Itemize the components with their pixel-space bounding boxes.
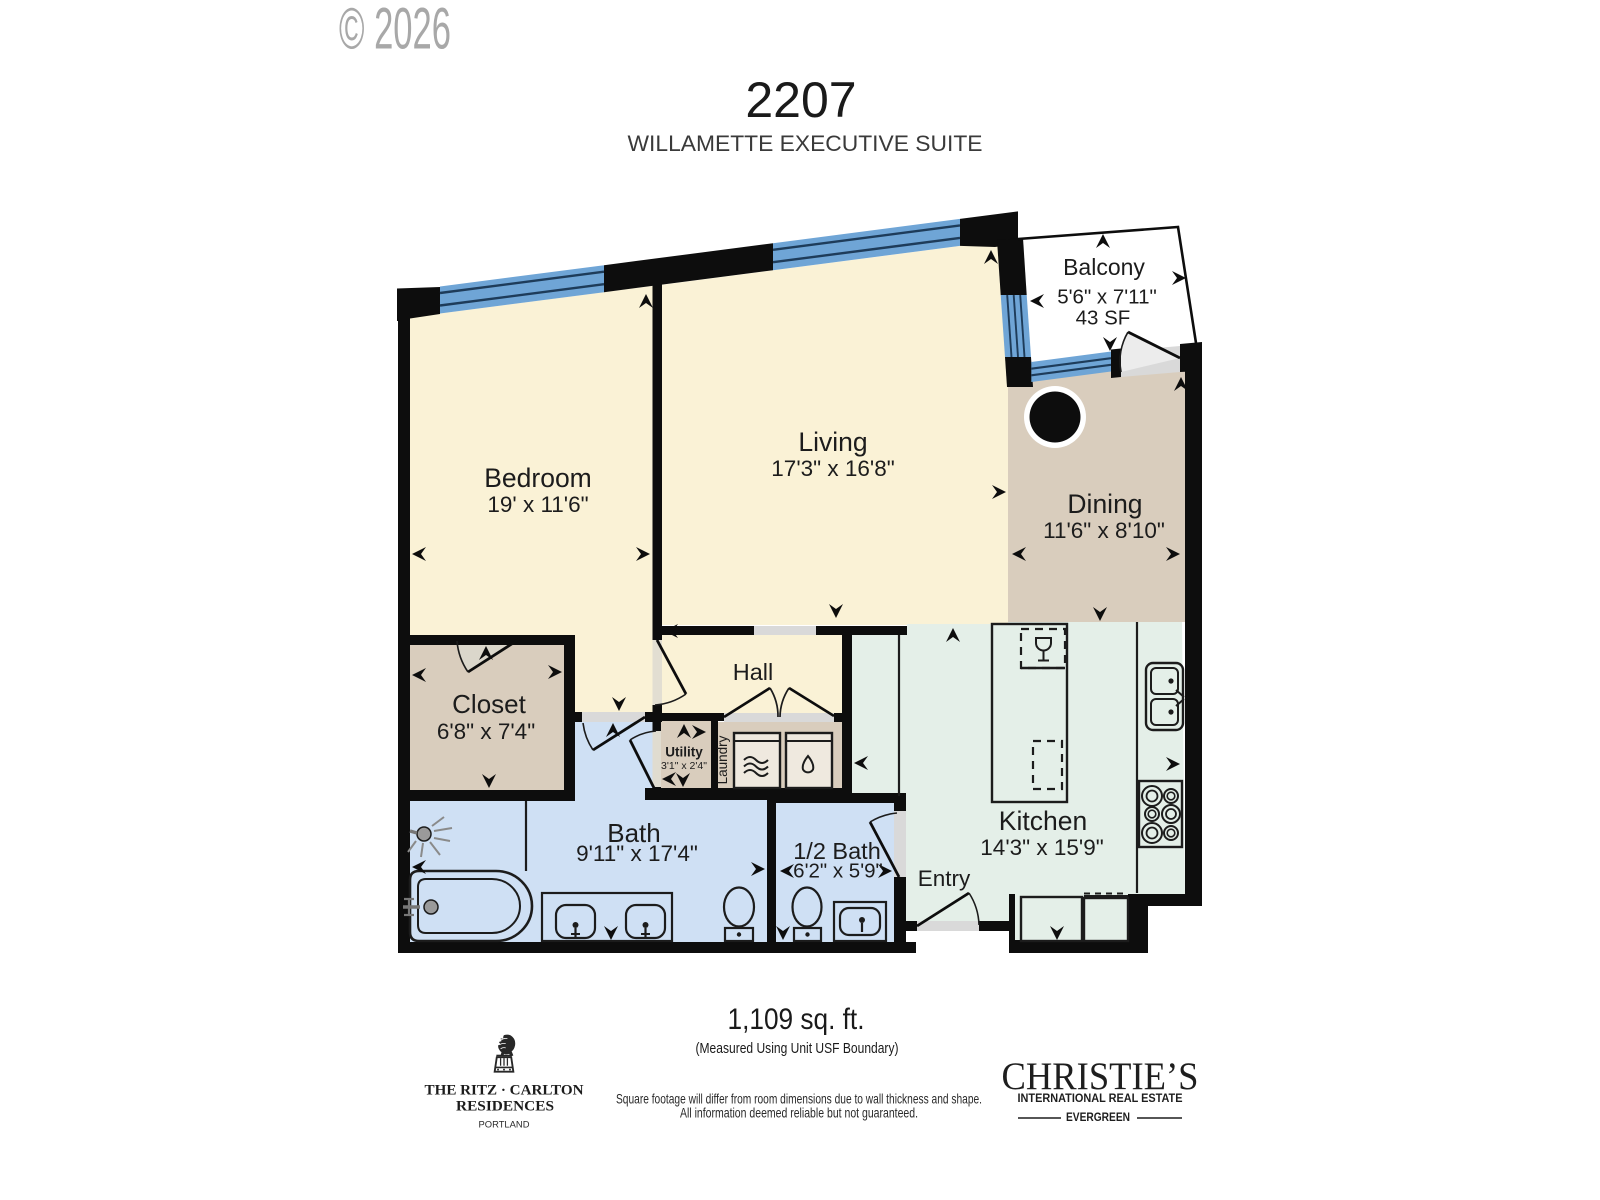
svg-text:INTERNATIONAL REAL ESTATE: INTERNATIONAL REAL ESTATE (1018, 1091, 1183, 1105)
svg-text:2207: 2207 (745, 72, 856, 128)
svg-text:Utility: Utility (665, 745, 703, 760)
svg-text:© 2026: © 2026 (339, 0, 451, 61)
svg-text:11'6" x 8'10": 11'6" x 8'10" (1043, 518, 1165, 543)
svg-text:EVERGREEN: EVERGREEN (1066, 1112, 1130, 1124)
svg-text:(Measured Using Unit USF Bound: (Measured Using Unit USF Boundary) (696, 1040, 899, 1057)
svg-text:Hall: Hall (733, 659, 773, 685)
svg-text:43 SF: 43 SF (1076, 306, 1131, 329)
svg-text:All information deemed reliabl: All information deemed reliable but not … (680, 1105, 918, 1121)
svg-text:Bedroom: Bedroom (484, 463, 592, 493)
svg-text:3'1" x 2'4": 3'1" x 2'4" (661, 760, 707, 772)
svg-text:Living: Living (798, 427, 867, 457)
svg-text:19' x 11'6": 19' x 11'6" (487, 492, 588, 517)
svg-text:Closet: Closet (452, 689, 526, 719)
svg-text:Kitchen: Kitchen (999, 806, 1087, 836)
svg-text:Laundry: Laundry (715, 735, 730, 784)
svg-text:Balcony: Balcony (1063, 254, 1145, 280)
svg-text:17'3" x 16'8": 17'3" x 16'8" (771, 456, 894, 481)
svg-text:RESIDENCES: RESIDENCES (456, 1098, 554, 1114)
svg-text:Entry: Entry (918, 866, 971, 891)
svg-text:5'6" x 7'11": 5'6" x 7'11" (1057, 285, 1157, 308)
svg-text:PORTLAND: PORTLAND (479, 1120, 530, 1131)
svg-text:Dining: Dining (1067, 489, 1142, 519)
svg-text:WILLAMETTE EXECUTIVE SUITE: WILLAMETTE EXECUTIVE SUITE (628, 131, 983, 156)
svg-text:THE RITZ · CARLTON: THE RITZ · CARLTON (425, 1082, 584, 1098)
svg-text:9'11" x 17'4": 9'11" x 17'4" (576, 841, 698, 866)
svg-text:6'2" x 5'9": 6'2" x 5'9" (793, 859, 883, 882)
svg-text:6'8" x 7'4": 6'8" x 7'4" (437, 719, 535, 744)
svg-text:14'3" x 15'9": 14'3" x 15'9" (980, 835, 1103, 860)
svg-text:1,109 sq. ft.: 1,109 sq. ft. (728, 1003, 865, 1036)
